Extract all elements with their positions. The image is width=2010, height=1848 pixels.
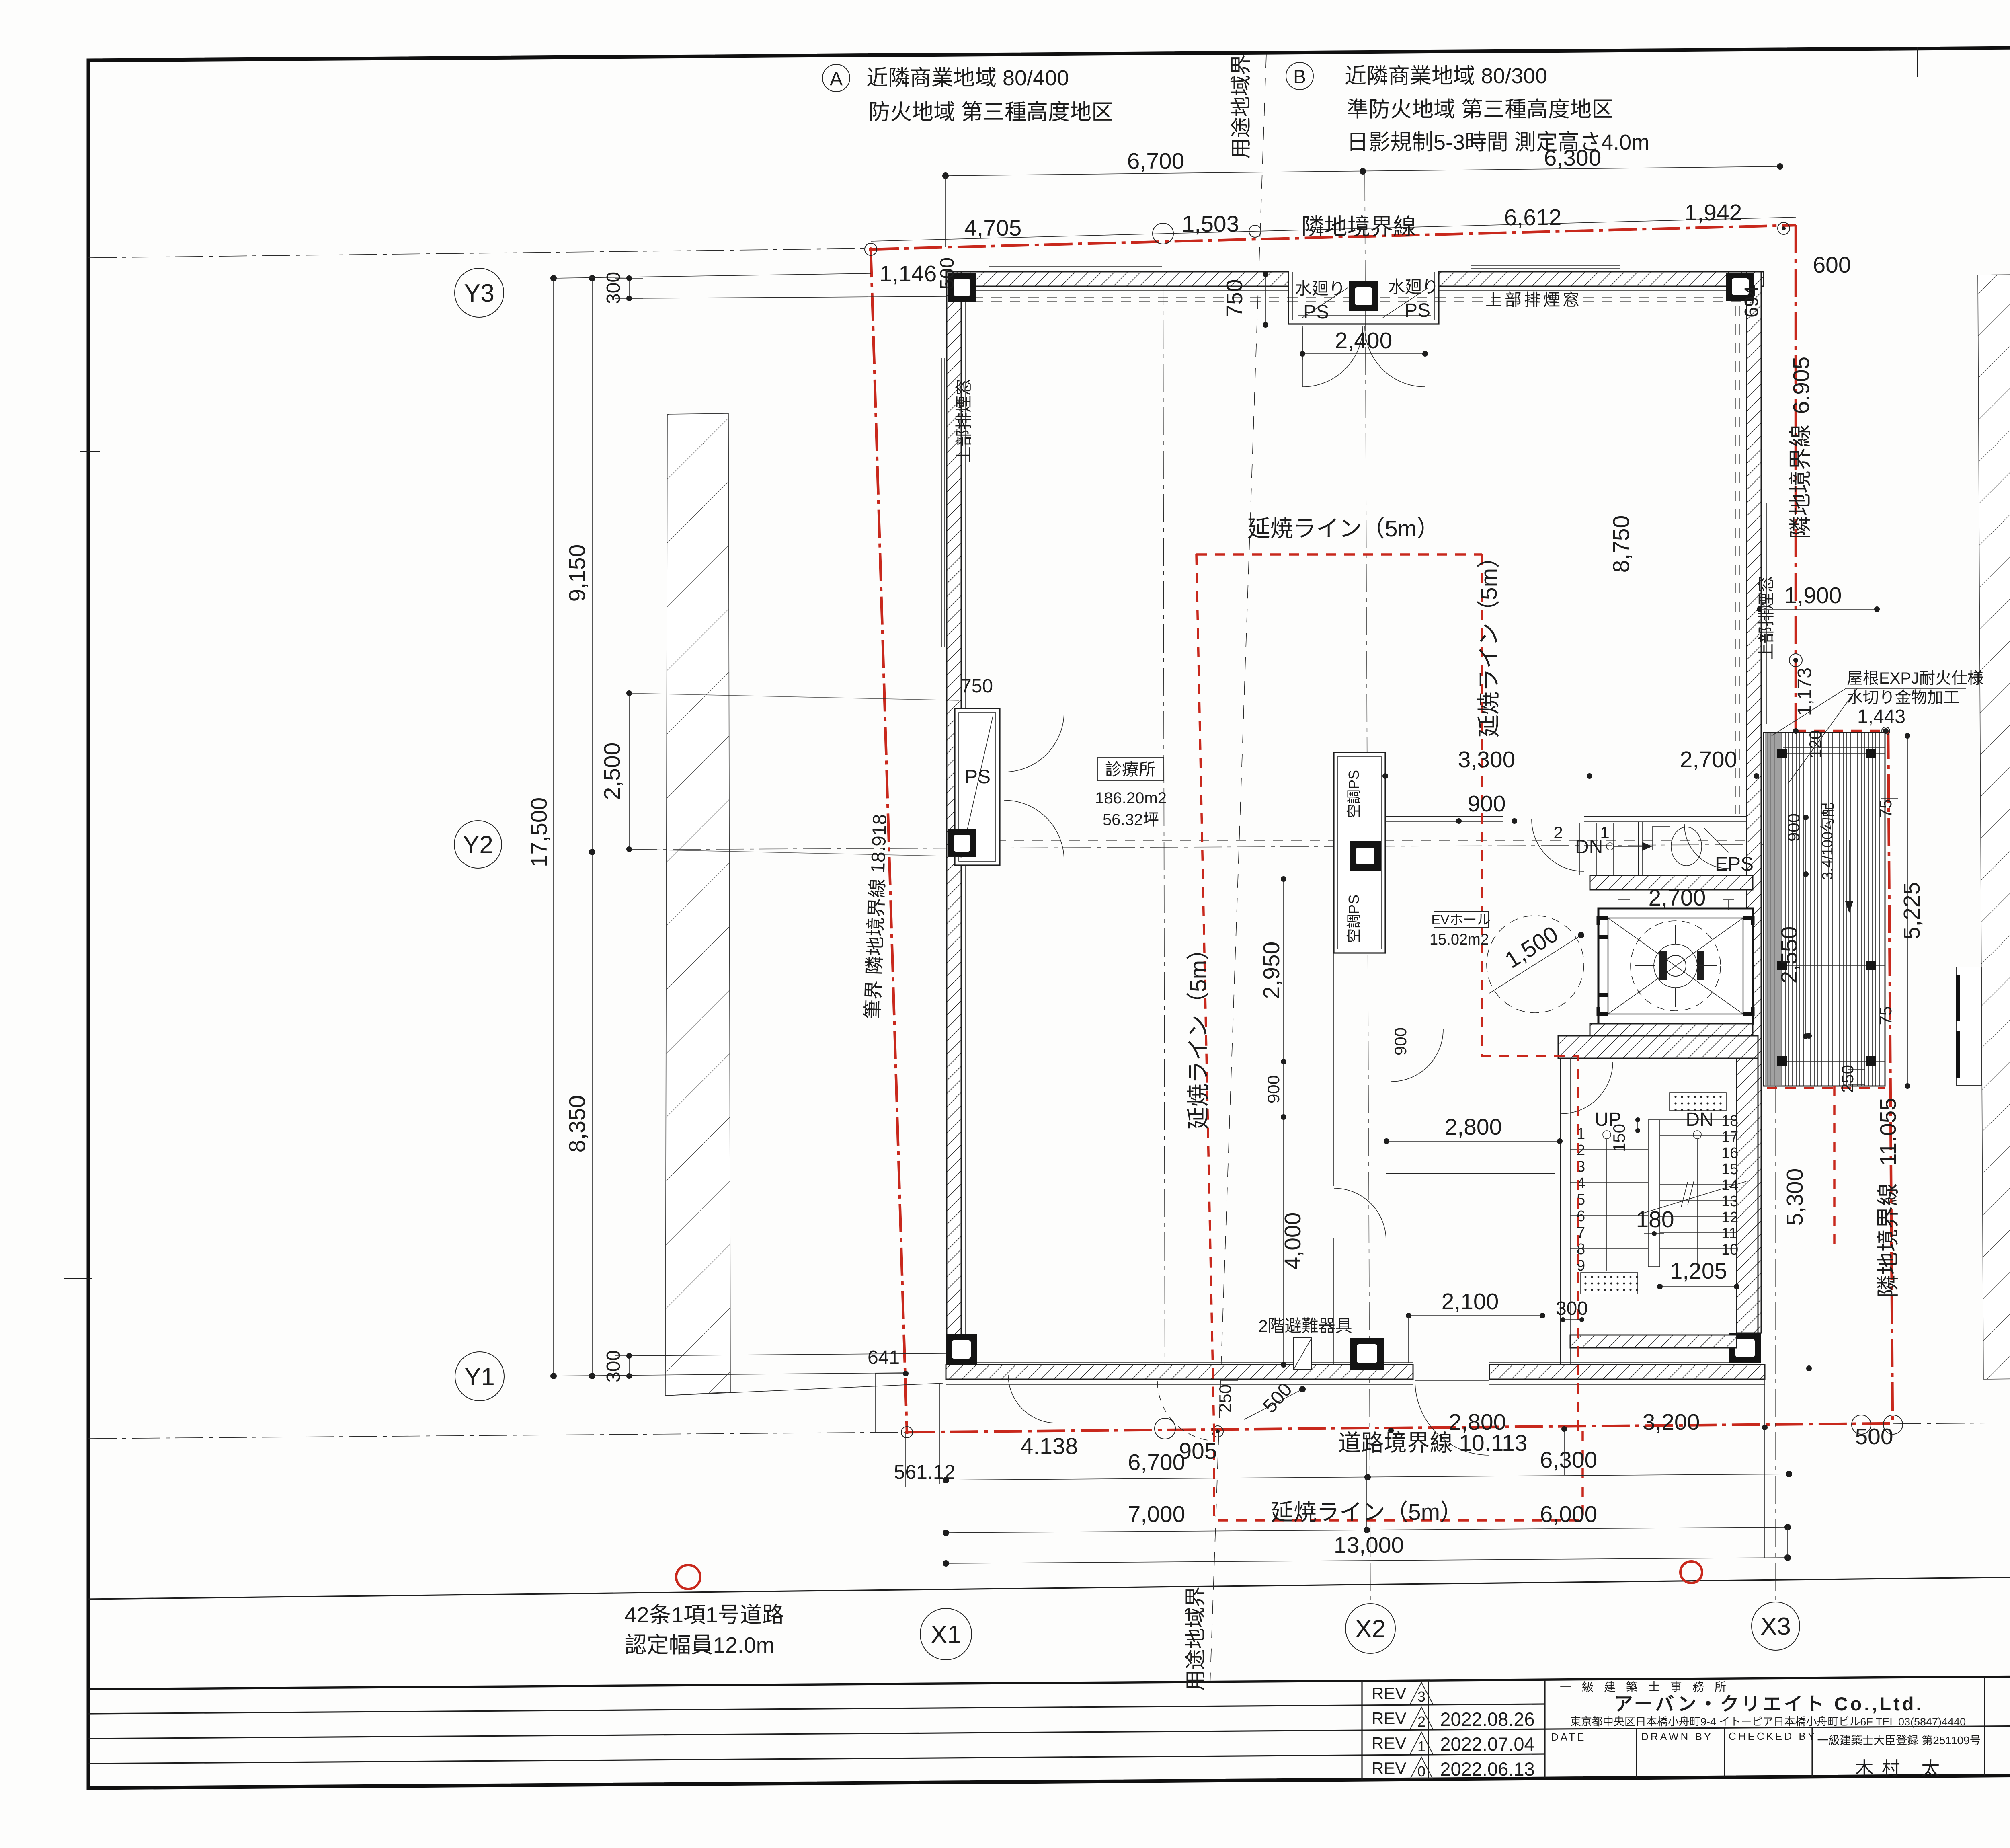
svg-text:上部排煙窓: 上部排煙窓: [1757, 576, 1776, 660]
svg-text:PS: PS: [1303, 302, 1329, 323]
svg-text:REV: REV: [1372, 1684, 1406, 1703]
svg-text:DRAWN BY: DRAWN BY: [1641, 1731, 1713, 1743]
svg-text:10: 10: [1721, 1241, 1738, 1258]
svg-text:4.138: 4.138: [1021, 1433, 1078, 1459]
svg-text:250: 250: [1838, 1065, 1857, 1093]
svg-text:延焼ライン（5m）: 延焼ライン（5m）: [1185, 937, 1211, 1129]
svg-text:2,800: 2,800: [1449, 1409, 1506, 1435]
svg-text:15.02m2: 15.02m2: [1430, 931, 1489, 948]
svg-text:近隣商業地域 80/400: 近隣商業地域 80/400: [866, 66, 1069, 90]
svg-text:750: 750: [1222, 279, 1247, 317]
svg-text:水切り金物加工: 水切り金物加工: [1847, 689, 1959, 706]
svg-text:5,225: 5,225: [1899, 882, 1925, 940]
svg-text:隣地境界線: 隣地境界線: [1788, 425, 1813, 539]
svg-text:2: 2: [1417, 1713, 1425, 1730]
svg-text:9,150: 9,150: [564, 544, 590, 602]
svg-text:17,500: 17,500: [526, 797, 552, 867]
svg-text:X3: X3: [1760, 1613, 1791, 1641]
svg-text:75: 75: [1876, 1006, 1895, 1025]
svg-text:11.055: 11.055: [1875, 1098, 1901, 1166]
svg-text:用途地域界: 用途地域界: [1184, 1586, 1208, 1691]
svg-text:日影規制5-3時間 測定高さ4.0m: 日影規制5-3時間 測定高さ4.0m: [1347, 130, 1649, 154]
svg-text:2階避難器具: 2階避難器具: [1258, 1316, 1352, 1335]
svg-text:一級建築士事務所: 一級建築士事務所: [1560, 1680, 1737, 1694]
svg-text:上部排煙窓: 上部排煙窓: [954, 379, 973, 463]
svg-text:2,700: 2,700: [1649, 885, 1706, 911]
svg-text:8,350: 8,350: [564, 1095, 590, 1153]
svg-text:防火地域 第三種高度地区: 防火地域 第三種高度地区: [868, 100, 1113, 124]
svg-text:隣地境界線: 隣地境界線: [1875, 1183, 1901, 1298]
svg-text:2,550: 2,550: [1776, 926, 1802, 984]
svg-text:水廻り: 水廻り: [1388, 277, 1439, 296]
svg-text:B: B: [1293, 66, 1306, 88]
svg-text:56.32坪: 56.32坪: [1103, 811, 1159, 829]
svg-text:近隣商業地域 80/300: 近隣商業地域 80/300: [1345, 64, 1547, 88]
svg-text:3,200: 3,200: [1643, 1409, 1700, 1435]
svg-text:15: 15: [1721, 1161, 1738, 1178]
svg-text:2,400: 2,400: [1335, 328, 1393, 353]
svg-text:認定幅員12.0m: 認定幅員12.0m: [625, 1632, 775, 1657]
svg-text:REV: REV: [1372, 1709, 1406, 1728]
svg-text:REV: REV: [1372, 1759, 1406, 1778]
svg-text:DN: DN: [1686, 1109, 1713, 1130]
svg-text:Y3: Y3: [464, 279, 494, 307]
svg-text:900: 900: [1391, 1027, 1410, 1055]
svg-text:900: 900: [1467, 791, 1505, 817]
svg-text:Y1: Y1: [464, 1363, 495, 1391]
svg-text:250: 250: [1216, 1384, 1235, 1413]
svg-text:900: 900: [1264, 1075, 1283, 1103]
svg-text:17: 17: [1721, 1129, 1738, 1146]
svg-text:準防火地域 第三種高度地区: 準防火地域 第三種高度地区: [1347, 97, 1613, 121]
svg-text:0: 0: [1417, 1763, 1425, 1780]
svg-text:3.4/100勾配: 3.4/100勾配: [1819, 803, 1836, 880]
svg-text:561.12: 561.12: [894, 1461, 956, 1483]
svg-text:上部排煙窓: 上部排煙窓: [1485, 290, 1582, 309]
svg-text:6,000: 6,000: [1540, 1501, 1598, 1527]
svg-text:120: 120: [1806, 730, 1825, 758]
svg-text:X1: X1: [931, 1621, 961, 1649]
svg-text:13,000: 13,000: [1334, 1532, 1404, 1558]
svg-text:2: 2: [1553, 823, 1563, 842]
svg-text:1,942: 1,942: [1685, 200, 1742, 226]
svg-text:2,800: 2,800: [1445, 1114, 1502, 1140]
svg-text:2022.06.13: 2022.06.13: [1440, 1758, 1534, 1780]
svg-text:4,705: 4,705: [964, 215, 1022, 241]
svg-text:1,146: 1,146: [880, 261, 937, 287]
svg-text:EVホール: EVホール: [1431, 912, 1490, 928]
svg-text:300: 300: [1556, 1298, 1588, 1319]
svg-text:EPS: EPS: [1715, 854, 1754, 875]
svg-text:2,700: 2,700: [1680, 747, 1737, 772]
svg-text:5,300: 5,300: [1782, 1168, 1808, 1226]
svg-text:隣地境界線: 隣地境界線: [1302, 214, 1416, 240]
svg-text:6,300: 6,300: [1544, 145, 1602, 171]
svg-text:屋根EXPJ耐火仕様: 屋根EXPJ耐火仕様: [1847, 669, 1983, 687]
svg-text:694: 694: [1741, 285, 1762, 318]
svg-text:600: 600: [1813, 252, 1851, 278]
svg-text:1,173: 1,173: [1794, 667, 1815, 716]
svg-text:6,700: 6,700: [1128, 1450, 1185, 1475]
svg-text:1: 1: [1417, 1738, 1425, 1755]
svg-text:空調PS: 空調PS: [1345, 895, 1362, 943]
svg-text:診療所: 診療所: [1105, 760, 1156, 779]
svg-text:2,100: 2,100: [1442, 1289, 1499, 1314]
svg-text:11: 11: [1721, 1225, 1737, 1242]
svg-text:DATE: DATE: [1551, 1731, 1586, 1743]
svg-text:2,950: 2,950: [1259, 942, 1284, 999]
svg-text:木村 太: 木村 太: [1855, 1758, 1948, 1779]
svg-text:PS: PS: [1405, 300, 1430, 321]
svg-text:641: 641: [868, 1347, 900, 1368]
svg-text:4,000: 4,000: [1280, 1212, 1306, 1270]
svg-text:東京都中央区日本橋小舟町9-4 イトーピア日本橋小舟町ビル6: 東京都中央区日本橋小舟町9-4 イトーピア日本橋小舟町ビル6F TEL 03(5…: [1570, 1716, 1966, 1728]
svg-text:空調PS: 空調PS: [1345, 770, 1362, 818]
svg-text:6.905: 6.905: [1788, 357, 1814, 414]
svg-text:500: 500: [937, 257, 958, 290]
svg-text:A: A: [830, 68, 843, 90]
svg-text:7,000: 7,000: [1128, 1501, 1185, 1527]
svg-text:750: 750: [961, 676, 993, 697]
svg-text:Y2: Y2: [463, 831, 493, 859]
svg-text:CHECKED BY: CHECKED BY: [1729, 1730, 1817, 1742]
svg-text:186.20m2: 186.20m2: [1095, 789, 1167, 807]
svg-text:75: 75: [1876, 799, 1895, 818]
svg-text:1,205: 1,205: [1670, 1258, 1727, 1284]
svg-text:2022.08.26: 2022.08.26: [1440, 1708, 1534, 1730]
svg-text:1,503: 1,503: [1182, 211, 1239, 237]
svg-text:500: 500: [1855, 1424, 1893, 1450]
svg-text:用途地域界: 用途地域界: [1230, 54, 1253, 159]
svg-text:8,750: 8,750: [1608, 515, 1634, 573]
svg-text:16: 16: [1721, 1145, 1738, 1162]
svg-text:300: 300: [603, 272, 624, 304]
svg-text:18: 18: [1721, 1113, 1738, 1129]
svg-text:12: 12: [1721, 1209, 1738, 1226]
svg-text:REV: REV: [1372, 1734, 1406, 1753]
svg-text:DN: DN: [1575, 836, 1603, 858]
svg-text:3,300: 3,300: [1458, 747, 1516, 772]
svg-text:900: 900: [1784, 813, 1803, 842]
svg-text:3: 3: [1417, 1688, 1425, 1705]
svg-text:1,900: 1,900: [1784, 583, 1842, 608]
svg-text:延焼ライン（5m）: 延焼ライン（5m）: [1271, 1499, 1463, 1525]
svg-text:2,500: 2,500: [599, 743, 625, 800]
svg-text:2022.07.04: 2022.07.04: [1440, 1733, 1534, 1755]
svg-text:X2: X2: [1355, 1615, 1386, 1643]
svg-text:14: 14: [1721, 1177, 1738, 1194]
svg-text:水廻り: 水廻り: [1295, 279, 1345, 298]
svg-text:6,300: 6,300: [1540, 1447, 1598, 1473]
svg-text:延焼ライン（5m）: 延焼ライン（5m）: [1247, 516, 1440, 542]
svg-text:13: 13: [1721, 1193, 1738, 1210]
svg-text:1,443: 1,443: [1857, 706, 1905, 727]
svg-text:180: 180: [1636, 1207, 1674, 1232]
svg-text:6,612: 6,612: [1504, 205, 1562, 230]
svg-text:42条1項1号道路: 42条1項1号道路: [624, 1602, 784, 1627]
svg-text:150: 150: [1610, 1124, 1629, 1152]
svg-text:300: 300: [603, 1350, 624, 1382]
svg-text:一級建築士大臣登録 第251109号: 一級建築士大臣登録 第251109号: [1817, 1734, 1981, 1747]
svg-text:6,700: 6,700: [1127, 148, 1185, 174]
svg-text:延焼ライン（5m）: 延焼ライン（5m）: [1476, 545, 1502, 737]
svg-text:アーバン・クリエイト Co.,Ltd.: アーバン・クリエイト Co.,Ltd.: [1614, 1693, 1924, 1715]
